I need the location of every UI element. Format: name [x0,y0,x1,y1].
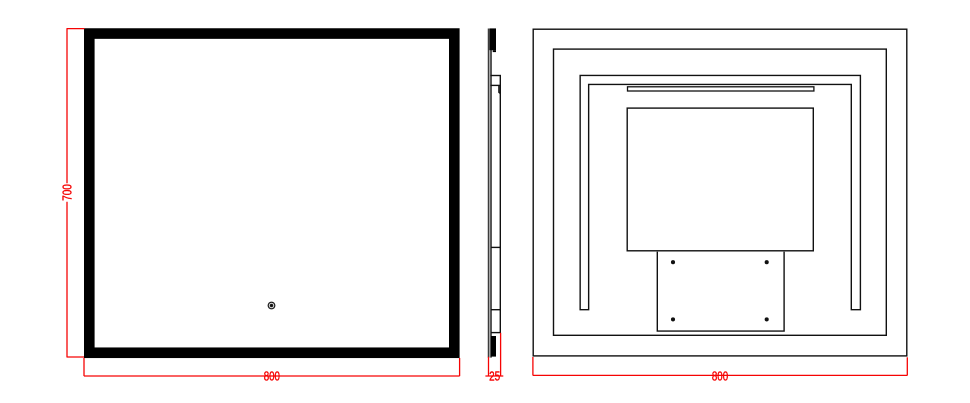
svg-text:800: 800 [712,370,728,384]
svg-text:700: 700 [60,184,74,201]
svg-text:25: 25 [489,369,500,383]
svg-text:800: 800 [264,370,280,384]
